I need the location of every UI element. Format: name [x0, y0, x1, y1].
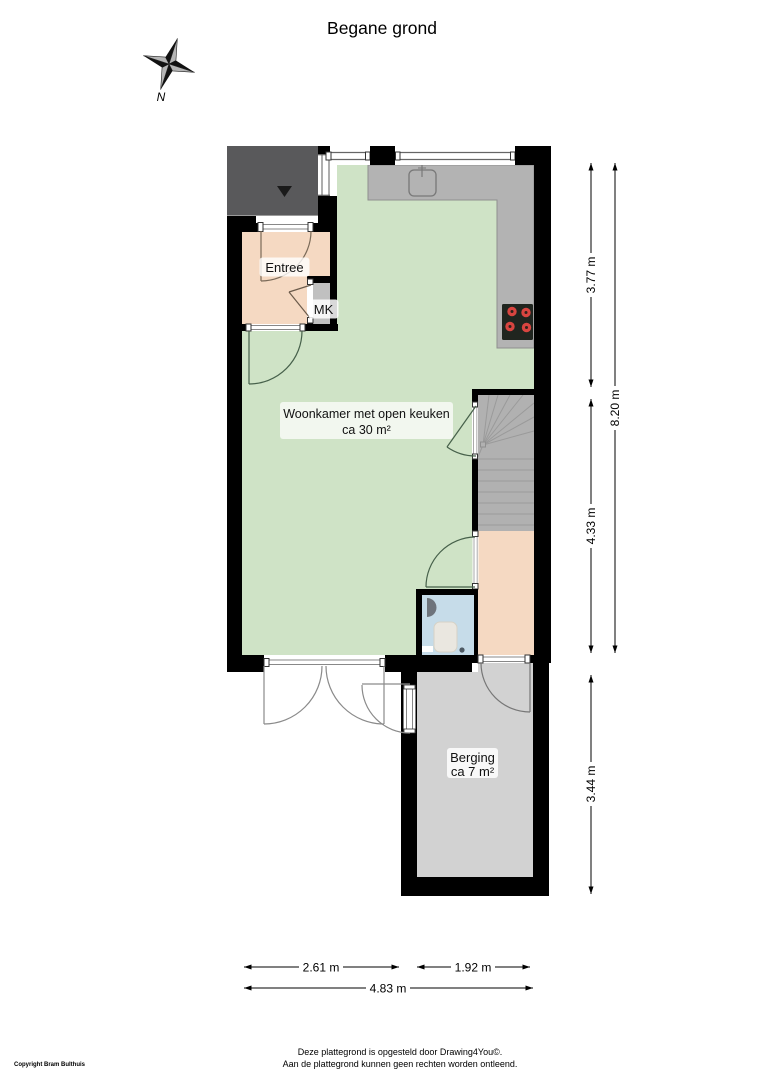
- svg-text:1.92 m: 1.92 m: [455, 961, 492, 975]
- svg-text:Aan de plattegrond kunnen geen: Aan de plattegrond kunnen geen rechten w…: [283, 1059, 518, 1069]
- svg-text:4.33 m: 4.33 m: [584, 508, 598, 545]
- svg-text:Berging: Berging: [450, 750, 495, 765]
- svg-text:ca 7 m²: ca 7 m²: [451, 764, 495, 779]
- svg-text:2.61 m: 2.61 m: [303, 961, 340, 975]
- svg-text:Copyright Bram Bulthuis: Copyright Bram Bulthuis: [14, 1062, 86, 1068]
- svg-text:8.20 m: 8.20 m: [608, 390, 622, 427]
- svg-text:Entree: Entree: [265, 260, 303, 275]
- svg-text:Begane grond: Begane grond: [327, 18, 437, 38]
- svg-text:N: N: [157, 90, 166, 104]
- svg-text:Woonkamer met open keuken: Woonkamer met open keuken: [283, 407, 450, 421]
- svg-text:ca 30 m²: ca 30 m²: [342, 423, 391, 437]
- svg-text:Deze plattegrond is opgesteld: Deze plattegrond is opgesteld door Drawi…: [298, 1047, 502, 1057]
- svg-text:3.77 m: 3.77 m: [584, 257, 598, 294]
- svg-text:4.83 m: 4.83 m: [370, 982, 407, 996]
- svg-text:3.44 m: 3.44 m: [584, 766, 598, 803]
- svg-text:MK: MK: [314, 302, 334, 317]
